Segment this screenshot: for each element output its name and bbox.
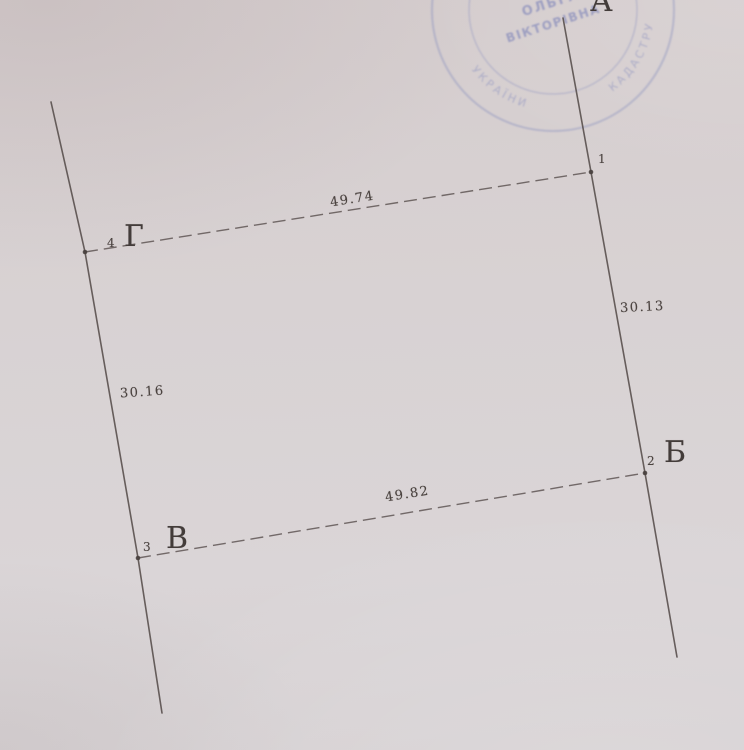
vertex-dot-2: [643, 471, 648, 476]
vertex-dot-4: [83, 250, 88, 255]
vertex-number-2: 2: [647, 455, 655, 467]
vertex-letter-g: Г: [124, 222, 144, 252]
scanned-parcel-plan-page: УКРАЇНИ КАДАСТРУ ОЛЬГА ВІКТОРІВНА 49.74 …: [0, 0, 744, 750]
dimension-label-left: 30.16: [120, 383, 166, 401]
vertex-dot-1: [589, 170, 594, 175]
stamp-ring-text-left: УКРАЇНИ: [467, 51, 534, 124]
bottom-side-dashed-line: [138, 473, 645, 558]
top-side-dashed-line: [85, 172, 591, 252]
vertex-letter-a: А: [590, 0, 613, 17]
vertex-number-3: 3: [143, 541, 151, 553]
vertex-number-1: 1: [598, 153, 606, 165]
left-boundary-line: [51, 102, 162, 713]
vertex-letter-b: Б: [664, 438, 686, 468]
vertex-dot-3: [136, 556, 141, 561]
right-boundary-line: [563, 18, 677, 657]
stamp-ring-text-right: КАДАСТРУ: [591, 17, 674, 96]
parcel-plan-drawing: УКРАЇНИ КАДАСТРУ ОЛЬГА ВІКТОРІВНА: [0, 0, 744, 750]
vertex-letter-v: В: [166, 524, 188, 554]
vertex-number-4: 4: [107, 237, 115, 249]
parcel-boundaries: [51, 18, 677, 713]
dimension-label-right: 30.13: [620, 299, 665, 316]
round-stamp: УКРАЇНИ КАДАСТРУ ОЛЬГА ВІКТОРІВНА: [401, 0, 706, 162]
